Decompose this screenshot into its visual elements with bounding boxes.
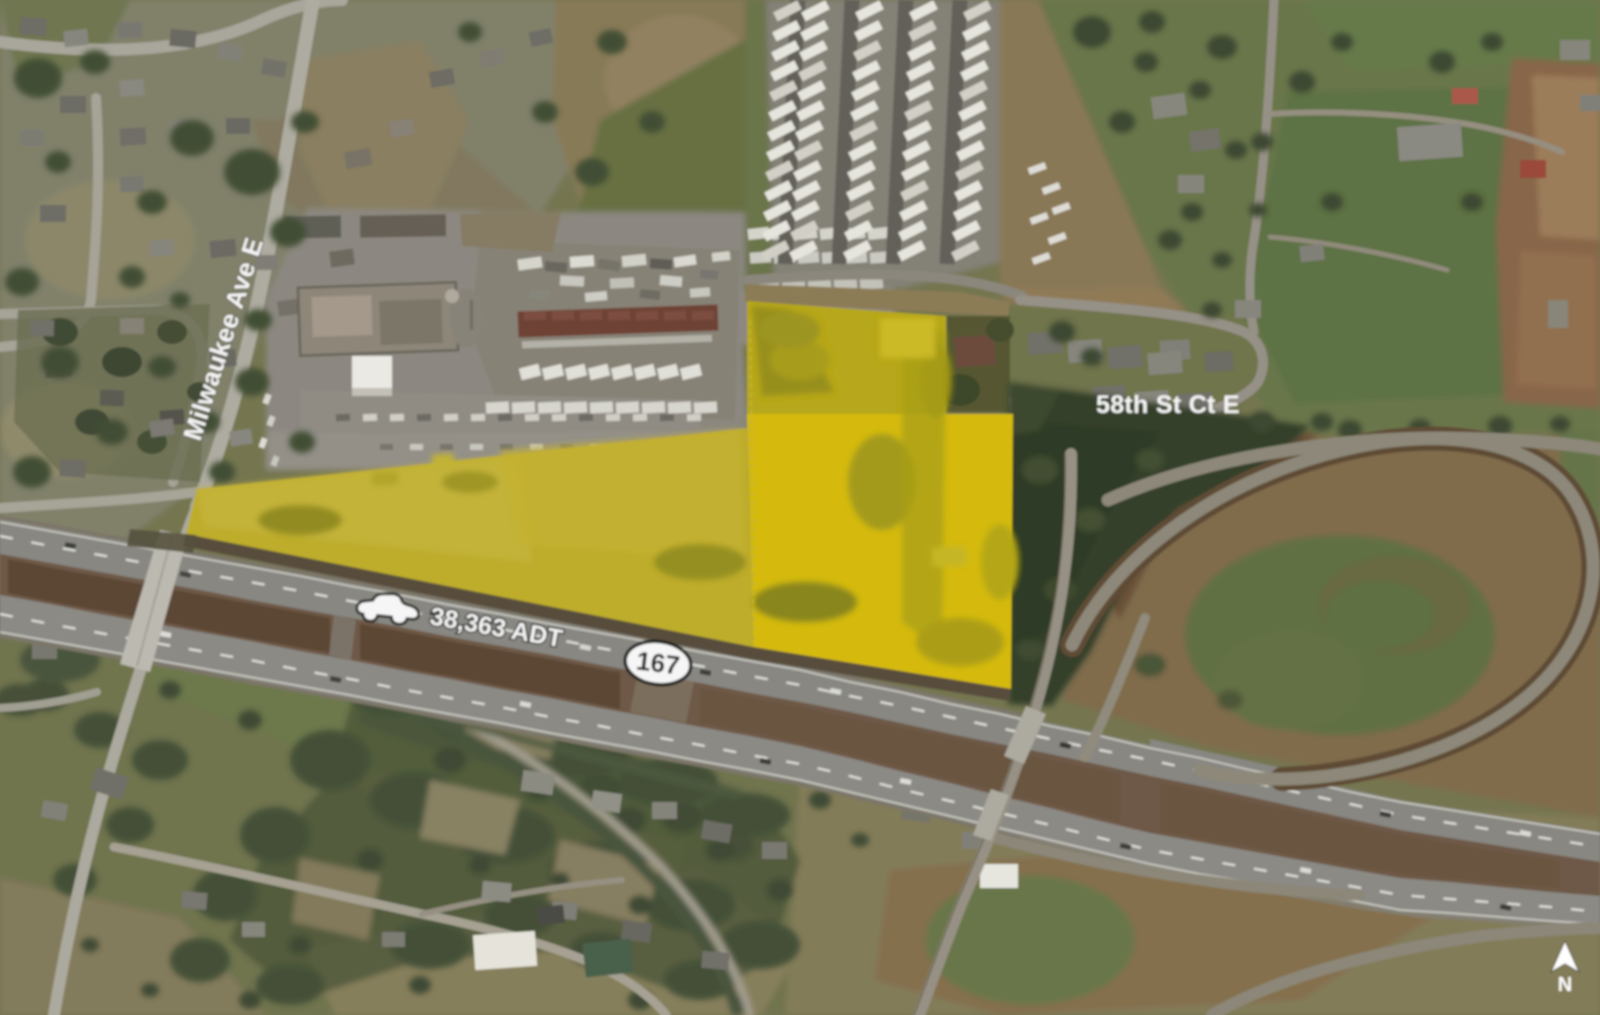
svg-text:N: N	[1558, 974, 1572, 996]
